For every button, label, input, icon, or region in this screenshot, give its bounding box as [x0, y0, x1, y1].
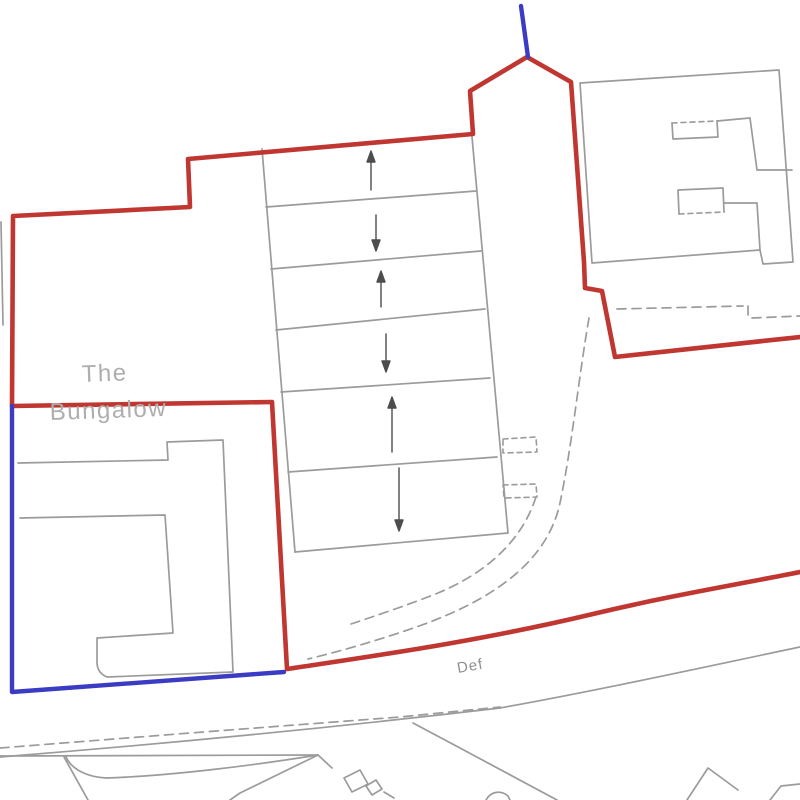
small-building [366, 780, 382, 795]
plot-corner-arc [486, 792, 510, 800]
plot-line [413, 723, 557, 800]
road-def-label: Def [456, 656, 485, 677]
road-south-edge [0, 755, 318, 756]
building-inner-line [724, 203, 760, 250]
map-labels: The Bungalow Def [49, 359, 484, 677]
arrow-down-head [372, 240, 380, 251]
plot-line [384, 792, 394, 798]
arrow-up-head [388, 397, 396, 408]
building-bungalow [18, 440, 233, 677]
blue-boundary [12, 6, 528, 692]
parking-divider [276, 309, 485, 330]
parking-bays [262, 137, 508, 552]
road-lines [0, 647, 800, 800]
track-edge-dashed [308, 318, 589, 659]
arrow-up-head [377, 271, 385, 282]
red-boundary-east [527, 57, 800, 357]
parking-divider [288, 457, 497, 472]
road-centre-dashed [0, 707, 500, 748]
building-outline [20, 515, 233, 677]
arrow-down-head [395, 520, 403, 531]
arrow-up-head [367, 151, 375, 162]
blue-reference-line-top [521, 6, 528, 57]
title-plan-map: The Bungalow Def [0, 0, 800, 800]
arrow-down-head [382, 361, 390, 372]
building-canopy-dashed [679, 212, 724, 214]
parking-divider [266, 191, 476, 207]
map-line [1, 222, 3, 325]
dashed-structure [503, 437, 537, 453]
plot-line [318, 755, 332, 768]
blue-boundary-bungalow [12, 406, 284, 692]
building-porch [672, 121, 718, 139]
property-name-line1: The [81, 359, 128, 388]
property-name-line2: Bungalow [49, 395, 167, 426]
building-porch [678, 188, 724, 214]
roofline [770, 784, 800, 800]
verge-curve [66, 755, 318, 778]
road-north-edge [0, 647, 800, 757]
building-inner-line [717, 118, 792, 170]
direction-arrows [367, 151, 403, 531]
building-northeast [580, 70, 793, 264]
red-title-boundary [12, 57, 800, 669]
building-canopy-dashed [672, 121, 717, 123]
red-boundary-west [12, 57, 800, 669]
building-outline [580, 70, 793, 264]
site-plan-svg: The Bungalow Def [0, 0, 800, 800]
dashed-structure [503, 484, 537, 498]
plot-line [64, 757, 88, 800]
parking-divider [271, 251, 481, 269]
parking-bottom-edge [295, 533, 508, 552]
roofline [687, 768, 738, 800]
small-building [344, 770, 368, 792]
base-map-lines [0, 70, 800, 800]
parking-right-edge [472, 137, 508, 533]
building-outline [18, 440, 233, 672]
boundary-dashed-east [617, 306, 800, 318]
track-edge-dashed [348, 497, 536, 625]
parking-divider [281, 378, 490, 392]
